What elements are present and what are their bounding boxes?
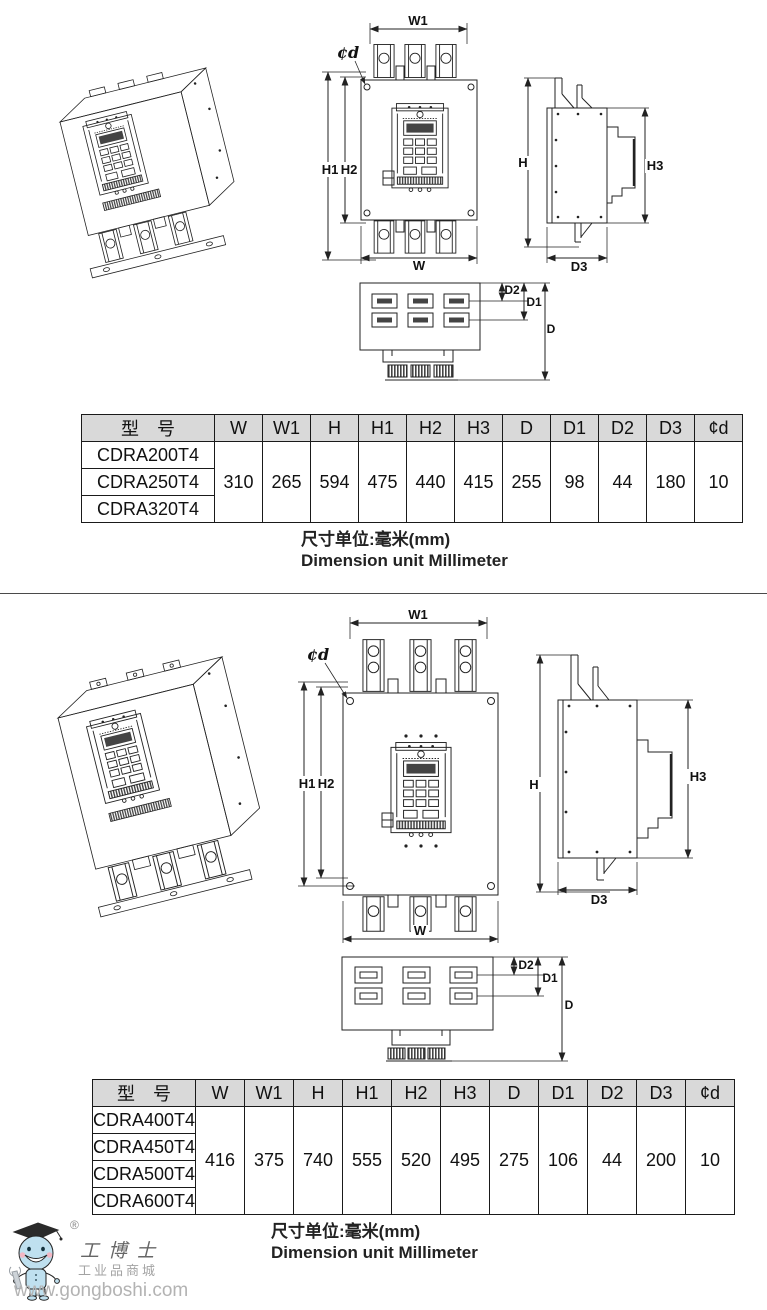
unit-note-small: 尺寸单位:毫米(mm) Dimension unit Millimeter <box>301 529 508 571</box>
value-cell: 265 <box>263 442 311 523</box>
column-header: H2 <box>407 415 455 442</box>
dim-label-h3: H3 <box>647 158 664 173</box>
value-cell: 555 <box>343 1107 392 1215</box>
brand-name: 工博士 <box>80 1236 164 1263</box>
dim-label-phi-d: ¢d <box>307 645 329 664</box>
value-cell: 440 <box>407 442 455 523</box>
dim-label-h1: H1 <box>299 776 316 791</box>
column-header: H3 <box>455 415 503 442</box>
dimension-table-small: 型 号WW1HH1H2H3DD1D2D3¢dCDRA200T4310265594… <box>81 414 743 523</box>
value-cell: 415 <box>455 442 503 523</box>
brand-subtitle: 工业品商城 <box>78 1260 158 1279</box>
unit-note-en: Dimension unit Millimeter <box>301 550 508 571</box>
isometric-view-large <box>28 648 308 923</box>
dim-label-h2: H2 <box>341 162 358 177</box>
column-header: H <box>294 1080 343 1107</box>
column-header: 型 号 <box>82 415 215 442</box>
bottom-view-large: D2 D1 D <box>330 945 580 1070</box>
table-row: CDRA400T44163757405555204952751064420010 <box>93 1107 735 1134</box>
model-cell: CDRA250T4 <box>82 469 215 496</box>
dim-label-d3: D3 <box>571 259 588 273</box>
dim-label-d: D <box>547 322 556 336</box>
dim-label-d1: D1 <box>542 971 558 985</box>
dim-label-d2: D2 <box>504 283 520 297</box>
value-cell: 200 <box>637 1107 686 1215</box>
value-cell: 275 <box>490 1107 539 1215</box>
model-cell: CDRA400T4 <box>93 1107 196 1134</box>
dimension-table-large: 型 号WW1HH1H2H3DD1D2D3¢dCDRA400T4416375740… <box>92 1079 735 1215</box>
dim-label-d2: D2 <box>518 958 534 972</box>
value-cell: 180 <box>647 442 695 523</box>
section-divider <box>0 593 767 594</box>
dim-label-h3: H3 <box>690 769 707 784</box>
value-cell: 594 <box>311 442 359 523</box>
column-header: D <box>490 1080 539 1107</box>
dim-label-w: W <box>413 258 426 272</box>
column-header: W <box>215 415 263 442</box>
value-cell: 740 <box>294 1107 343 1215</box>
brand-url: www.gongboshi.com <box>14 1280 188 1302</box>
column-header: ¢d <box>695 415 743 442</box>
dim-label-d1: D1 <box>526 295 542 309</box>
column-header: D1 <box>539 1080 588 1107</box>
column-header: D1 <box>551 415 599 442</box>
value-cell: 44 <box>588 1107 637 1215</box>
isometric-view-small <box>40 62 270 287</box>
model-cell: CDRA500T4 <box>93 1161 196 1188</box>
front-view-large: W1 ¢d H1 H2 W <box>293 603 508 945</box>
value-cell: 10 <box>686 1107 735 1215</box>
value-cell: 475 <box>359 442 407 523</box>
value-cell: 106 <box>539 1107 588 1215</box>
value-cell: 310 <box>215 442 263 523</box>
column-header: D <box>503 415 551 442</box>
column-header: D2 <box>588 1080 637 1107</box>
column-header: W1 <box>263 415 311 442</box>
front-view-small: W1 ¢d H1 H2 W <box>318 14 498 272</box>
column-header: H3 <box>441 1080 490 1107</box>
page: { "drawings": { "labels": { "w1": "W1", … <box>0 0 767 1310</box>
value-cell: 44 <box>599 442 647 523</box>
dim-label-d3: D3 <box>591 892 608 907</box>
iso-body-small <box>48 62 248 278</box>
dim-label-h: H <box>518 155 527 170</box>
dim-label-phi-d: ¢d <box>337 43 359 62</box>
value-cell: 10 <box>695 442 743 523</box>
unit-note-zh: 尺寸单位:毫米(mm) <box>301 529 508 550</box>
value-cell: 255 <box>503 442 551 523</box>
dim-label-d: D <box>565 998 574 1012</box>
column-header: ¢d <box>686 1080 735 1107</box>
dim-label-w1: W1 <box>408 607 428 622</box>
unit-note-zh: 尺寸单位:毫米(mm) <box>271 1221 478 1242</box>
dim-label-w1: W1 <box>408 14 428 28</box>
column-header: W1 <box>245 1080 294 1107</box>
column-header: W <box>196 1080 245 1107</box>
model-cell: CDRA320T4 <box>82 496 215 523</box>
column-header: H2 <box>392 1080 441 1107</box>
column-header: H1 <box>343 1080 392 1107</box>
value-cell: 520 <box>392 1107 441 1215</box>
table-row: CDRA200T4310265594475440415255984418010 <box>82 442 743 469</box>
dim-label-h1: H1 <box>322 162 339 177</box>
iso-body-large <box>45 650 276 917</box>
column-header: D2 <box>599 415 647 442</box>
bottom-view-small: D2 D1 D <box>352 275 557 387</box>
column-header: D3 <box>647 415 695 442</box>
value-cell: 375 <box>245 1107 294 1215</box>
column-header: H1 <box>359 415 407 442</box>
value-cell: 416 <box>196 1107 245 1215</box>
value-cell: 495 <box>441 1107 490 1215</box>
column-header: H <box>311 415 359 442</box>
side-view-small: H H3 D3 <box>517 60 667 273</box>
column-header: D3 <box>637 1080 686 1107</box>
unit-note-en: Dimension unit Millimeter <box>271 1242 478 1263</box>
registered-mark: ® <box>70 1218 79 1232</box>
unit-note-large: 尺寸单位:毫米(mm) Dimension unit Millimeter <box>271 1221 478 1263</box>
dim-label-h2: H2 <box>318 776 335 791</box>
model-cell: CDRA600T4 <box>93 1188 196 1215</box>
dimension-table: 型 号WW1HH1H2H3DD1D2D3¢dCDRA400T4416375740… <box>92 1079 735 1215</box>
dim-label-h: H <box>529 777 538 792</box>
model-cell: CDRA450T4 <box>93 1134 196 1161</box>
model-cell: CDRA200T4 <box>82 442 215 469</box>
column-header: 型 号 <box>93 1080 196 1107</box>
value-cell: 98 <box>551 442 599 523</box>
dimension-table: 型 号WW1HH1H2H3DD1D2D3¢dCDRA200T4310265594… <box>81 414 743 523</box>
side-view-large: H H3 D3 <box>525 622 725 912</box>
dim-label-w: W <box>414 923 427 938</box>
